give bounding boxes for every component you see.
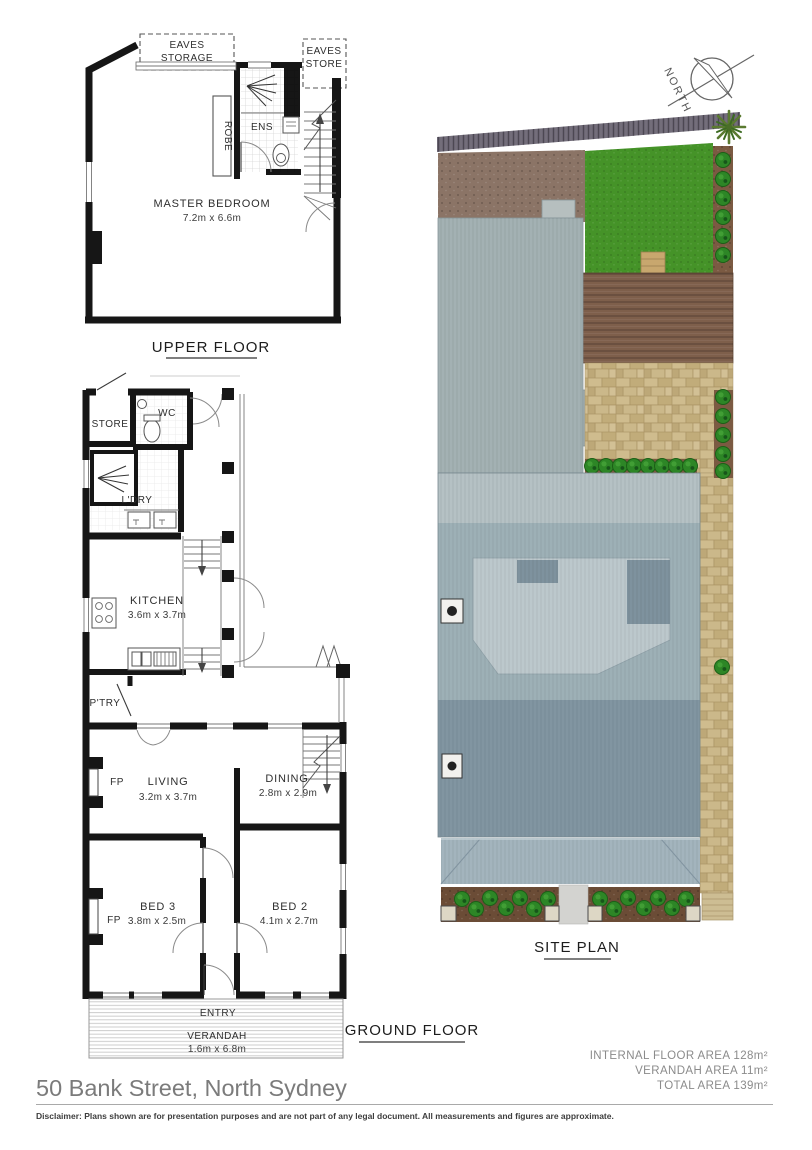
kitchen-room: KITCHEN 3.6m x 3.7m <box>92 595 186 670</box>
main-house-roof <box>438 473 700 837</box>
floorplan-page: EAVES STORAGE EAVES STORE <box>0 0 812 1150</box>
stone-side-path <box>700 473 733 893</box>
post <box>222 388 234 400</box>
fp-bed3-label: FP <box>107 915 121 926</box>
chimney <box>442 754 462 778</box>
master-bedroom-dims: 7.2m x 6.6m <box>183 213 241 224</box>
stove <box>92 598 116 628</box>
living-dims: 3.2m x 3.7m <box>139 792 197 803</box>
north-label: NORTH <box>661 66 693 115</box>
laundry-label: L'DRY <box>122 495 153 506</box>
wc-basin <box>138 400 147 409</box>
bed2-label: BED 2 <box>272 901 308 913</box>
wc-label: WC <box>158 408 176 419</box>
wc-toilet <box>144 420 160 442</box>
fp-living-label: FP <box>110 777 124 788</box>
total-area: TOTAL AREA 139m² <box>657 1080 768 1092</box>
robe: ROBE <box>213 96 233 176</box>
front-post <box>686 906 700 921</box>
bed3-fireplace: FP <box>89 888 121 945</box>
ground-floor-title: GROUND FLOOR <box>345 1022 480 1039</box>
upper-window-left <box>85 162 93 202</box>
hall-doors <box>173 848 267 953</box>
garden-steps <box>641 252 665 274</box>
laundry-room: L'DRY <box>90 450 179 530</box>
dining-label: DINING <box>265 773 308 785</box>
pantry-room: P'TRY <box>90 676 131 716</box>
ground-stairs <box>183 536 221 676</box>
kitchen-label: KITCHEN <box>130 595 184 607</box>
store-label: STORE <box>92 419 129 430</box>
bed2-dims: 4.1m x 2.7m <box>260 916 318 927</box>
verandah-label: VERANDAH <box>187 1031 247 1042</box>
vanity <box>283 117 299 133</box>
wc-room: WC <box>136 394 219 445</box>
deck-stair-symbol <box>316 646 341 667</box>
sink <box>132 652 141 666</box>
post <box>222 531 234 543</box>
bed3-label: BED 3 <box>140 901 176 913</box>
post <box>222 462 234 474</box>
post <box>222 628 234 640</box>
post <box>336 664 350 678</box>
verandah-dims: 1.6m x 6.8m <box>188 1044 246 1055</box>
garage-roof <box>438 200 607 473</box>
north-compass-icon: NORTH <box>661 55 754 115</box>
ground-walls-lower-block <box>83 722 344 999</box>
verandah-area: VERANDAH AREA 11m² <box>635 1065 768 1077</box>
palm-tree <box>713 111 745 143</box>
living-fireplace: FP <box>89 757 124 808</box>
disclaimer-text: Disclaimer: Plans shown are for presenta… <box>36 1111 614 1121</box>
front-garden <box>441 885 700 924</box>
eaves-store-label-2: STORE <box>306 59 343 70</box>
upper-floor-title: UPPER FLOOR <box>152 339 271 356</box>
dining-dims: 2.8m x 2.9m <box>259 788 317 799</box>
ground-floor-plan: WC STORE L'DRY <box>83 373 480 1058</box>
front-post <box>545 906 559 921</box>
upper-floor-area <box>86 55 341 320</box>
front-post <box>588 906 602 921</box>
ens-label: ENS <box>251 122 273 133</box>
internal-floor-area: INTERNAL FLOOR AREA 128m² <box>590 1050 768 1062</box>
ensuite: ENS <box>241 69 299 172</box>
kitchen-dims: 3.6m x 3.7m <box>128 610 186 621</box>
front-path <box>559 885 588 924</box>
bed3-dims: 3.8m x 2.5m <box>128 916 186 927</box>
property-address: 50 Bank Street, North Sydney <box>36 1075 347 1101</box>
verandah: ENTRY VERANDAH 1.6m x 6.8m <box>89 999 343 1058</box>
master-bedroom-label: MASTER BEDROOM <box>154 198 271 210</box>
pantry-label: P'TRY <box>90 698 121 709</box>
eaves-store-label-1: EAVES <box>306 46 341 57</box>
site-plan: NORTH <box>437 55 754 959</box>
chimney <box>441 599 463 623</box>
post <box>222 570 234 582</box>
footer: 50 Bank Street, North Sydney INTERNAL FL… <box>36 1050 773 1121</box>
wall-pier <box>89 231 102 264</box>
side-deck <box>222 388 350 722</box>
lower-top-windows <box>137 722 302 746</box>
post <box>222 665 234 678</box>
stone-courtyard <box>585 363 733 473</box>
side-steps <box>702 893 733 920</box>
site-plan-title: SITE PLAN <box>534 939 620 956</box>
eaves-storage-label-1: EAVES <box>169 40 204 51</box>
living-label: LIVING <box>148 776 189 788</box>
shrub <box>716 153 731 168</box>
robe-label: ROBE <box>222 121 233 151</box>
upper-floor-plan: EAVES STORAGE EAVES STORE <box>85 34 346 358</box>
verandah-roof <box>441 838 700 884</box>
front-post <box>441 906 456 921</box>
entry-label: ENTRY <box>200 1008 236 1019</box>
